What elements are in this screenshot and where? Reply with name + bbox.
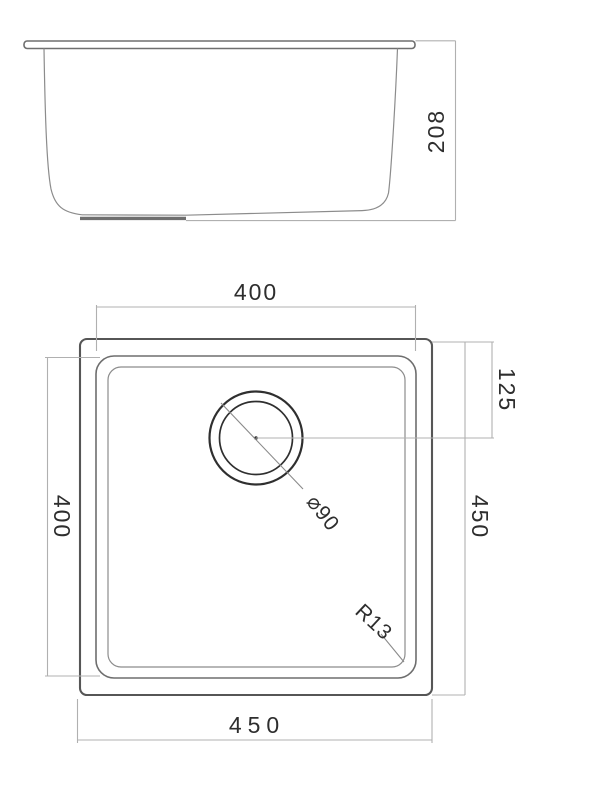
drain-diameter-label: ⌀90 bbox=[302, 491, 344, 536]
bowl-depth-label: 400 bbox=[49, 495, 75, 539]
depth-dimension-label: 208 bbox=[423, 109, 449, 153]
corner-radius-label: R13 bbox=[351, 600, 397, 645]
side-view-bottom-and-right-wall bbox=[82, 49, 398, 216]
top-view: ⌀90 R13 400 400 450 125 bbox=[45, 279, 520, 743]
technical-drawing-canvas: 208 ⌀90 R13 400 bbox=[0, 0, 605, 800]
side-view: 208 bbox=[24, 41, 456, 221]
side-view-left-wall bbox=[44, 49, 82, 215]
overall-width-label: 450 bbox=[229, 712, 285, 738]
drain-diameter-leader bbox=[221, 403, 303, 489]
drain-offset-label: 125 bbox=[494, 368, 520, 412]
sink-drawing-svg: 208 ⌀90 R13 400 bbox=[0, 0, 605, 800]
overall-depth-label: 450 bbox=[467, 495, 493, 539]
side-view-rim-flange bbox=[24, 41, 415, 49]
bowl-width-label: 400 bbox=[234, 279, 278, 305]
